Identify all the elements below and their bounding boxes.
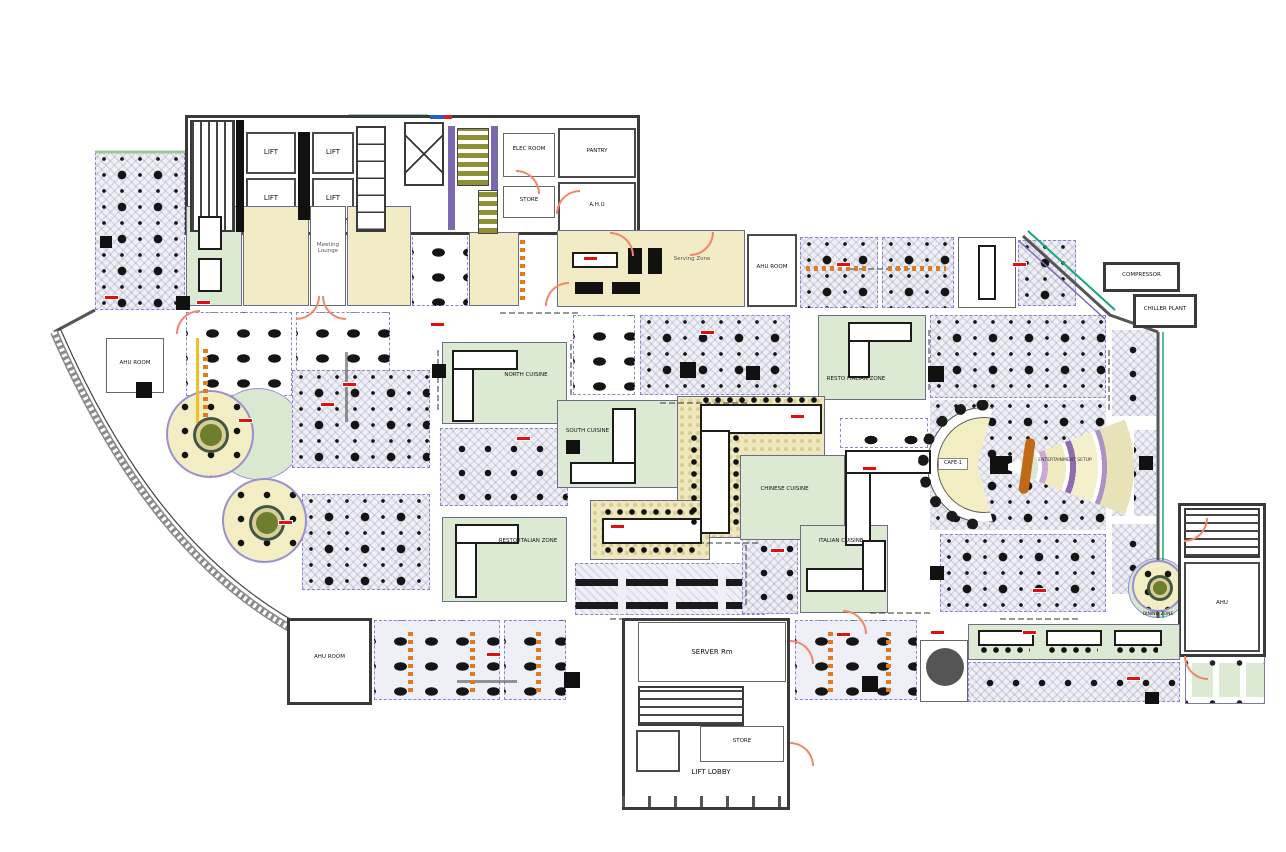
column: [100, 236, 112, 248]
buffet-lower-stools-top: [602, 506, 698, 516]
italian-cuisine-label: ITALIAN CUISINE: [806, 538, 876, 544]
column: [746, 366, 760, 380]
dimension-string: [345, 352, 348, 422]
lift-bottom: [636, 730, 680, 772]
seating-cluster-topleft: [95, 152, 185, 310]
buffet-stools-inner: [730, 432, 740, 528]
column: [136, 382, 152, 398]
dimension-string: [570, 340, 572, 395]
long-table-1: [198, 216, 222, 250]
door-arc: [843, 610, 867, 634]
stage-label: ENTERTAINMENT SETUP: [1032, 458, 1098, 463]
meeting-table-cluster: [840, 418, 928, 448]
store-top-label: STORE: [503, 197, 555, 203]
round-feature: [926, 648, 964, 686]
seating-cluster-4top-1: [440, 428, 568, 506]
serving-counter-5: [612, 282, 640, 294]
seat-count-tag: [862, 466, 877, 471]
chair-accent-5: [408, 628, 413, 692]
longtable-topband: [978, 245, 996, 300]
seat-count-tag: [104, 295, 119, 300]
pod-3-hub: [1150, 578, 1170, 598]
seating-cluster-4top-2: [742, 528, 798, 614]
north-cuisine-label: NORTH CUISINE: [495, 372, 557, 378]
seat-count-tag: [700, 330, 715, 335]
seat-count-tag: [1126, 676, 1141, 681]
resto-italian-a-label: RESTO ITALIAN ZONE: [820, 376, 892, 382]
seating-cluster-topband-2: [882, 237, 954, 308]
chair-accent-8: [828, 628, 833, 692]
server-room-label: SERVER Rm: [638, 648, 786, 656]
stair-wall-left: [448, 126, 455, 230]
staircase-bottom: [638, 686, 744, 726]
escalator-shaft: [404, 122, 444, 186]
roof-marker-blue: [430, 115, 444, 119]
ahu-room-bottomleft-label: AHU ROOM: [287, 654, 372, 660]
meeting-lounge-label: Meeting Lounge: [306, 242, 350, 255]
seating-cluster-left-2: [302, 494, 430, 590]
long-table-2: [198, 258, 222, 292]
buffet-counter-left: [700, 430, 730, 534]
seating-cluster-left-1: [292, 370, 430, 468]
lift-lobby-label: LIFT LOBBY: [636, 768, 786, 776]
buffet-lower-stools-bottom: [602, 544, 698, 554]
column: [1139, 456, 1153, 470]
shaft-wall: [236, 120, 244, 232]
greenrow-stools-3: [1114, 644, 1158, 654]
seat-count-tag: [320, 402, 335, 407]
lift-3-label: LIFT: [312, 148, 354, 156]
resto-italian-b-label: RESTO ITALIAN ZONE: [492, 538, 564, 544]
seat-count-tag: [1032, 588, 1047, 593]
serving-zone-label: Serving Zone: [668, 256, 716, 262]
seating-cluster-right-1: [1112, 330, 1156, 416]
chair-accent-9: [886, 628, 891, 692]
column: [566, 440, 580, 454]
north-cuisine-counter-h: [452, 350, 518, 370]
toilet-stalls: [356, 126, 386, 232]
seat-count-tag: [430, 322, 445, 327]
seat-count-tag: [1022, 630, 1037, 635]
chair-accent-4: [203, 345, 208, 425]
seat-count-tag: [278, 520, 293, 525]
ahu-room-bottomleft: [287, 618, 372, 705]
floor-plan-canvas: LIFT LIFT LIFT LIFT ELEC ROOM STORE PANT…: [0, 0, 1286, 852]
seating-cluster-mid-2: [930, 315, 1106, 398]
seating-cluster-topband-3: [1018, 240, 1076, 306]
booth-cluster-bottom-1: [374, 620, 500, 700]
seating-cluster-mid-1: [640, 315, 790, 395]
ahu-room-left-label: AHU ROOM: [106, 360, 164, 366]
ahu-right-label: AHU: [1184, 600, 1260, 606]
chair-accent-7: [536, 628, 541, 692]
serving-counter-3: [648, 248, 662, 274]
column: [928, 366, 944, 382]
meeting-lounge-corridor: [310, 206, 346, 306]
yellow-wall-accent: [196, 338, 199, 423]
elec-room: [503, 133, 555, 177]
door-arc: [176, 310, 200, 334]
pod-1-hub: [196, 420, 226, 450]
seat-count-tag: [516, 436, 531, 441]
seat-count-tag: [238, 418, 253, 423]
lift-divider: [298, 132, 310, 220]
italian-cuisine-counter-v: [862, 540, 886, 592]
lift-4-label: LIFT: [312, 194, 354, 202]
seat-count-tag: [342, 382, 357, 387]
dimension-string: [437, 350, 439, 410]
seat-count-tag: [486, 652, 501, 657]
dimension-string: [500, 312, 580, 314]
booth-cluster-1: [186, 312, 292, 396]
seat-count-tag: [196, 300, 211, 305]
seat-count-tag: [930, 630, 945, 635]
roof-marker-red: [444, 115, 452, 119]
ahu-room-mid-label: AHU ROOM: [744, 264, 800, 270]
ahu-top-label: A.H.U: [558, 202, 636, 208]
pantry-label: PANTRY: [558, 148, 636, 154]
elec-room-label: ELEC ROOM: [505, 146, 553, 152]
seating-cluster-topband-1: [800, 237, 878, 308]
column: [432, 364, 446, 378]
seating-cluster-row3-right: [940, 534, 1106, 612]
seat-count-tag: [836, 632, 851, 637]
buffet-stools-top: [700, 394, 818, 404]
south-cuisine-counter-h: [570, 462, 636, 484]
service-duct: [478, 190, 498, 234]
dimension-string: [610, 618, 680, 620]
lounge-yellow-1: [243, 206, 309, 306]
column: [564, 672, 580, 688]
booth-cluster-bottom-2: [504, 620, 566, 700]
door-arc: [545, 282, 569, 306]
serving-counter-4: [575, 282, 603, 294]
chair-accent-1: [520, 240, 525, 300]
lift-1-label: LIFT: [246, 148, 296, 156]
compressor-label: COMPRESSOR: [1103, 272, 1180, 278]
fire-stair-treads: [457, 128, 489, 186]
lift-2-label: LIFT: [246, 194, 296, 202]
greenrow-stools-1: [978, 644, 1030, 654]
column: [862, 676, 878, 692]
resto-italian-a-counter-h: [848, 322, 912, 342]
longrow-cluster-center: [575, 563, 765, 615]
column: [680, 362, 696, 378]
greenrow-stools-2: [1046, 644, 1098, 654]
ahu-room-mid: [747, 234, 797, 307]
store-bottom-label: STORE: [700, 738, 784, 744]
ahu-right-room: [1184, 562, 1260, 652]
column: [176, 296, 190, 310]
buffet-lower-counter: [602, 518, 702, 544]
door-arc: [790, 742, 814, 766]
dimension-string: [457, 680, 517, 683]
booth-cluster-3: [573, 315, 635, 395]
column: [930, 566, 944, 580]
south-cuisine-label: SOUTH CUISINE: [560, 428, 615, 434]
cafe-label: CAFE-1: [938, 461, 968, 467]
chiller-plant-label: CHILLER PLANT: [1133, 306, 1197, 312]
entry-porch: [622, 796, 790, 810]
seat-count-tag: [770, 548, 785, 553]
chinese-cuisine-label: CHINESE CUISINE: [752, 486, 817, 492]
seat-count-tag: [610, 524, 625, 529]
chair-accent-6: [470, 628, 475, 692]
column: [1145, 692, 1159, 704]
dining-zone-label: DINING ZONE: [1126, 612, 1190, 617]
seat-count-tag: [836, 262, 851, 267]
seat-count-tag: [790, 414, 805, 419]
lounge-yellow-3: [469, 232, 519, 306]
seat-count-tag: [1012, 262, 1027, 267]
dimension-string: [745, 545, 747, 605]
dimension-string: [1108, 350, 1110, 410]
chair-accent-3: [888, 266, 946, 271]
dimension-string: [1000, 618, 1080, 620]
seat-count-tag: [583, 256, 598, 261]
dimension-string: [870, 612, 930, 614]
